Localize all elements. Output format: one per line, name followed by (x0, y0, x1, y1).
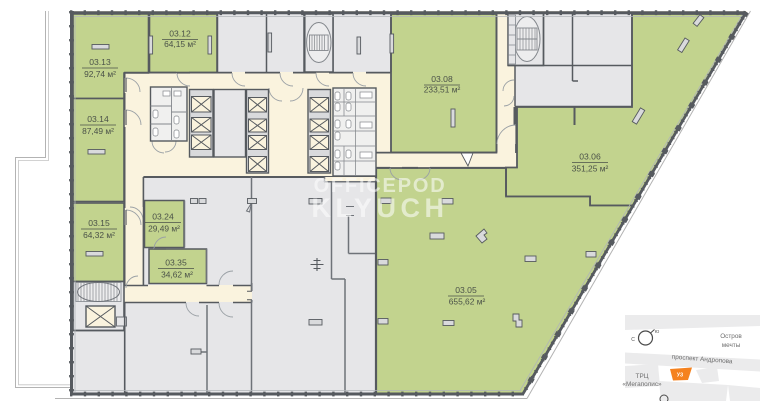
svg-text:233,51 м²: 233,51 м² (424, 85, 461, 95)
svg-text:03.05: 03.05 (455, 285, 477, 295)
svg-text:03.06: 03.06 (579, 152, 601, 162)
svg-text:Остров: Остров (720, 333, 742, 340)
svg-text:03.35: 03.35 (165, 258, 187, 268)
svg-text:351,25 м²: 351,25 м² (572, 164, 609, 174)
svg-text:34,62 м²: 34,62 м² (161, 270, 193, 280)
svg-text:KLYUCH: KLYUCH (311, 193, 448, 223)
svg-text:29,49 м²: 29,49 м² (148, 224, 180, 234)
svg-text:03.13: 03.13 (89, 57, 111, 67)
svg-text:мечты: мечты (722, 342, 741, 349)
svg-text:64,32 м²: 64,32 м² (83, 230, 115, 240)
svg-text:03.14: 03.14 (87, 114, 109, 124)
svg-text:ТРЦ: ТРЦ (636, 373, 649, 380)
svg-text:87,49 м²: 87,49 м² (82, 126, 114, 136)
svg-text:655,62 м²: 655,62 м² (449, 297, 486, 307)
svg-text:64,15 м²: 64,15 м² (164, 39, 196, 49)
svg-text:03.08: 03.08 (431, 74, 453, 84)
svg-text:92,74 м²: 92,74 м² (84, 69, 116, 79)
svg-text:«Мегаполис»: «Мегаполис» (622, 381, 662, 388)
svg-text:УЗ: УЗ (677, 373, 683, 379)
svg-text:Ю: Ю (655, 329, 660, 334)
svg-text:03.24: 03.24 (152, 212, 174, 222)
svg-text:С: С (631, 337, 635, 343)
svg-text:03.12: 03.12 (169, 29, 191, 39)
svg-text:03.15: 03.15 (88, 218, 110, 228)
